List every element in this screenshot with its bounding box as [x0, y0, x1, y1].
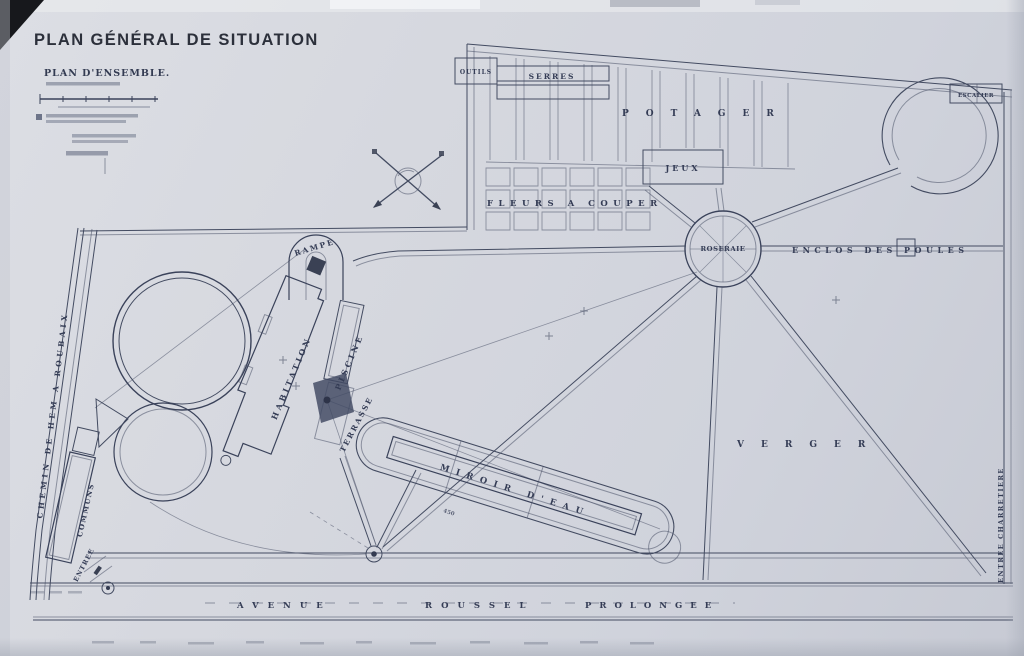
subtitle-note-blur	[46, 82, 120, 86]
communs-building	[46, 427, 112, 582]
path-nodes	[102, 296, 840, 594]
label-jeux: JEUX	[664, 163, 700, 173]
compass-rose	[371, 149, 444, 212]
label-entree: ENTREE	[72, 547, 96, 583]
label-communs: COMMUNS	[75, 482, 96, 538]
label-serres: SERRES	[529, 72, 576, 81]
label-avenue-roussel: AVENUE ROUSSEL PROLONGEE	[236, 601, 719, 611]
label-habitation: HABITATION	[269, 335, 313, 421]
porch-dark	[306, 256, 326, 276]
label-avenue-word2: ROUSSEL	[425, 601, 534, 611]
scanned-plan-page: PLAN GÉNÉRAL DE SITUATION PLAN D'ENSEMBL…	[0, 0, 1024, 656]
plan-labels: OUTILS SERRES POTAGER JEUX FLEURS A COUP…	[35, 69, 1005, 611]
bottom-edge-shadow	[0, 638, 1024, 656]
roads-and-boundary	[30, 44, 1013, 620]
signature-blur	[66, 151, 108, 156]
label-potager: POTAGER	[622, 109, 791, 119]
viewpoint-node	[324, 397, 331, 404]
label-piscine: PISCINE	[333, 332, 366, 391]
label-miroir-dimension: 450	[442, 508, 455, 517]
scale-bar	[40, 94, 158, 108]
lawn-circles	[96, 272, 251, 501]
label-entree-charretiere: ENTREE CHARRETIERE	[997, 467, 1005, 583]
label-verger: VERGER	[736, 440, 882, 450]
label-escalier: ESCALIER	[958, 93, 994, 99]
right-edge-shadow	[1006, 0, 1024, 656]
label-enclos-des-poules: ENCLOS DES POULES	[792, 245, 969, 255]
plan-subtitle: PLAN D'ENSEMBLE.	[44, 68, 170, 79]
site-plan-drawing: PLAN GÉNÉRAL DE SITUATION PLAN D'ENSEMBL…	[0, 0, 1024, 656]
label-outils: OUTILS	[460, 69, 492, 76]
label-avenue-word1: AVENUE	[236, 601, 332, 611]
legend-blur-text	[36, 114, 138, 174]
title-block: PLAN GÉNÉRAL DE SITUATION PLAN D'ENSEMBL…	[34, 30, 319, 174]
label-roseraie: ROSERAIE	[701, 245, 746, 253]
label-fleurs-a-couper: FLEURS A COUPER	[487, 199, 663, 209]
scan-bottom-dashes	[30, 591, 654, 645]
page-title: PLAN GÉNÉRAL DE SITUATION	[34, 30, 319, 49]
label-avenue-word3: PROLONGEE	[585, 601, 719, 611]
triangle-bed	[96, 399, 128, 447]
